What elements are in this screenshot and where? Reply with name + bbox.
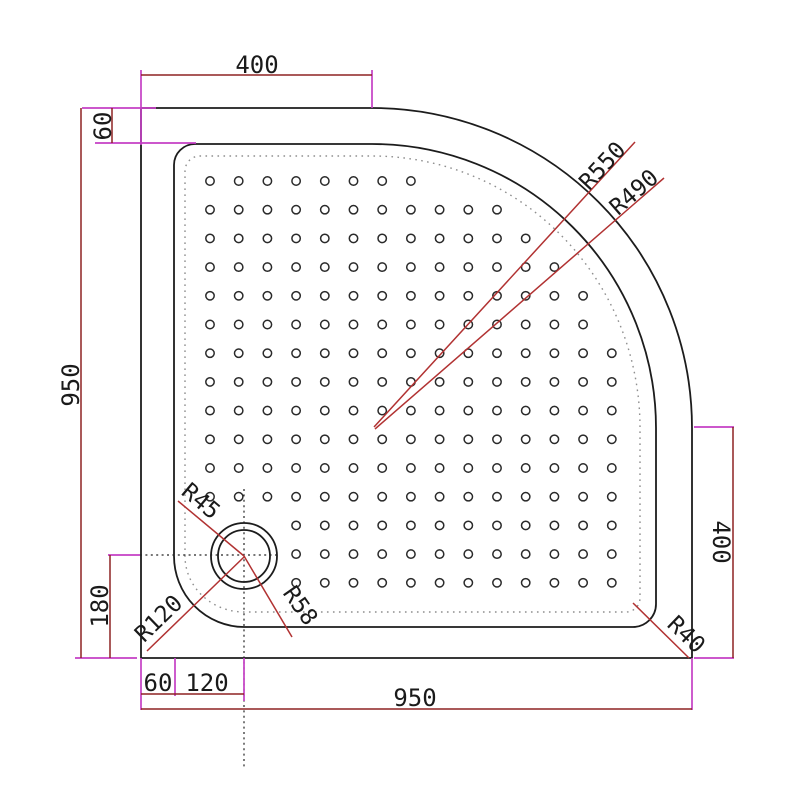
anti-slip-dot — [407, 263, 415, 271]
anti-slip-dot — [464, 464, 472, 472]
anti-slip-dot — [550, 521, 558, 529]
anti-slip-dot — [206, 320, 214, 328]
anti-slip-dot — [235, 493, 243, 501]
anti-slip-dot — [579, 579, 587, 587]
anti-slip-dot — [235, 292, 243, 300]
anti-slip-dot — [235, 234, 243, 242]
anti-slip-dot — [579, 521, 587, 529]
label-bottom-width: 950 — [393, 684, 436, 712]
anti-slip-dot — [378, 378, 386, 386]
anti-slip-dot — [321, 206, 329, 214]
anti-slip-dot — [378, 493, 386, 501]
anti-slip-dot — [464, 206, 472, 214]
anti-slip-dot — [435, 263, 443, 271]
anti-slip-dot — [407, 320, 415, 328]
anti-slip-dot — [206, 435, 214, 443]
anti-slip-dot — [608, 521, 616, 529]
anti-slip-dot — [206, 206, 214, 214]
anti-slip-dot — [349, 378, 357, 386]
anti-slip-dot — [349, 320, 357, 328]
anti-slip-dot — [464, 292, 472, 300]
anti-slip-dot — [263, 292, 271, 300]
shower-tray-technical-drawing: 400 60 950 400 180 60 120 950 R550 R490 … — [0, 0, 800, 800]
anti-slip-dot — [292, 435, 300, 443]
anti-slip-dot — [493, 550, 501, 558]
anti-slip-dot — [378, 464, 386, 472]
anti-slip-dot — [235, 378, 243, 386]
anti-slip-dot — [407, 406, 415, 414]
anti-slip-dot — [321, 320, 329, 328]
anti-slip-dot — [321, 550, 329, 558]
anti-slip-dot — [522, 493, 530, 501]
anti-slip-dot — [435, 320, 443, 328]
anti-slip-dot — [321, 177, 329, 185]
anti-slip-dot — [206, 234, 214, 242]
anti-slip-dot — [435, 435, 443, 443]
anti-slip-dot — [407, 550, 415, 558]
anti-slip-dot — [493, 406, 501, 414]
anti-slip-dot — [349, 263, 357, 271]
anti-slip-dot — [263, 493, 271, 501]
anti-slip-dot — [550, 435, 558, 443]
anti-slip-dot — [378, 406, 386, 414]
anti-slip-dot — [263, 320, 271, 328]
label-drain-from-bottom: 180 — [86, 584, 114, 627]
anti-slip-dot — [349, 234, 357, 242]
anti-slip-dot — [464, 435, 472, 443]
anti-slip-dot — [349, 579, 357, 587]
anti-slip-dot — [522, 320, 530, 328]
anti-slip-dot — [349, 206, 357, 214]
anti-slip-dot — [349, 177, 357, 185]
anti-slip-dot — [493, 521, 501, 529]
anti-slip-dot — [464, 234, 472, 242]
anti-slip-dot — [407, 349, 415, 357]
anti-slip-dot — [407, 234, 415, 242]
anti-slip-dot — [378, 320, 386, 328]
anti-slip-dot — [321, 464, 329, 472]
anti-slip-dot — [235, 320, 243, 328]
anti-slip-dot — [349, 406, 357, 414]
anti-slip-dot — [522, 579, 530, 587]
anti-slip-dot — [321, 378, 329, 386]
anti-slip-dot — [206, 292, 214, 300]
anti-slip-dot — [550, 406, 558, 414]
anti-slip-dot — [321, 406, 329, 414]
anti-slip-dot — [292, 406, 300, 414]
anti-slip-dot — [579, 464, 587, 472]
anti-slip-dot — [522, 550, 530, 558]
label-top-width: 400 — [235, 51, 278, 79]
anti-slip-dot — [522, 234, 530, 242]
anti-slip-dot — [579, 406, 587, 414]
anti-slip-dot — [206, 349, 214, 357]
anti-slip-dot — [321, 292, 329, 300]
anti-slip-dot — [292, 378, 300, 386]
anti-slip-dot — [464, 493, 472, 501]
anti-slip-dot — [550, 579, 558, 587]
anti-slip-dot — [407, 579, 415, 587]
anti-slip-dot — [579, 349, 587, 357]
anti-slip-dot — [378, 521, 386, 529]
anti-slip-dot — [292, 464, 300, 472]
anti-slip-dot — [206, 464, 214, 472]
anti-slip-dot — [550, 464, 558, 472]
anti-slip-dot — [435, 493, 443, 501]
label-drain-from-rim: 120 — [185, 669, 228, 697]
anti-slip-dot — [349, 464, 357, 472]
anti-slip-dot — [550, 493, 558, 501]
anti-slip-dot — [378, 349, 386, 357]
anti-slip-dot — [407, 493, 415, 501]
anti-slip-dot — [263, 406, 271, 414]
anti-slip-dot — [235, 206, 243, 214]
anti-slip-dot — [579, 550, 587, 558]
anti-slip-dot — [378, 263, 386, 271]
label-left-height: 950 — [57, 363, 85, 406]
anti-slip-dot — [464, 579, 472, 587]
anti-slip-dot — [550, 550, 558, 558]
anti-slip-dot — [493, 435, 501, 443]
anti-slip-dot — [464, 406, 472, 414]
anti-slip-dot — [493, 234, 501, 242]
anti-slip-dot — [407, 378, 415, 386]
anti-slip-dot — [378, 435, 386, 443]
anti-slip-dot — [493, 579, 501, 587]
anti-slip-dot — [206, 406, 214, 414]
anti-slip-dot — [235, 263, 243, 271]
anti-slip-dot — [321, 435, 329, 443]
anti-slip-dot — [263, 177, 271, 185]
anti-slip-dot — [235, 435, 243, 443]
anti-slip-dot — [579, 320, 587, 328]
anti-slip-dot — [378, 177, 386, 185]
anti-slip-dot — [464, 378, 472, 386]
anti-slip-dot — [292, 493, 300, 501]
anti-slip-dot — [292, 521, 300, 529]
anti-slip-dot — [292, 320, 300, 328]
anti-slip-dot — [321, 493, 329, 501]
anti-slip-dot — [378, 292, 386, 300]
anti-slip-dot — [550, 320, 558, 328]
anti-slip-dot — [435, 464, 443, 472]
anti-slip-dot — [493, 493, 501, 501]
label-rim-left: 60 — [144, 669, 173, 697]
anti-slip-dot — [292, 177, 300, 185]
anti-slip-dot — [579, 493, 587, 501]
anti-slip-dot — [378, 579, 386, 587]
anti-slip-dot — [263, 464, 271, 472]
anti-slip-dot — [608, 349, 616, 357]
anti-slip-dot — [608, 435, 616, 443]
anti-slip-dot — [435, 378, 443, 386]
anti-slip-dot — [321, 521, 329, 529]
anti-slip-dot — [349, 493, 357, 501]
anti-slip-dot — [608, 579, 616, 587]
anti-slip-dot — [493, 320, 501, 328]
anti-slip-dot — [321, 349, 329, 357]
anti-slip-dot — [378, 206, 386, 214]
anti-slip-dot — [579, 378, 587, 386]
anti-slip-dot — [378, 550, 386, 558]
anti-slip-dot — [464, 263, 472, 271]
anti-slip-dot — [206, 177, 214, 185]
anti-slip-dot — [349, 435, 357, 443]
anti-slip-dot — [321, 579, 329, 587]
anti-slip-dot — [493, 206, 501, 214]
anti-slip-dot — [522, 349, 530, 357]
anti-slip-dot — [522, 435, 530, 443]
anti-slip-dot — [550, 349, 558, 357]
anti-slip-dot — [263, 234, 271, 242]
anti-slip-dot — [235, 406, 243, 414]
anti-slip-dot — [263, 206, 271, 214]
anti-slip-dot — [407, 177, 415, 185]
anti-slip-dot — [435, 292, 443, 300]
anti-slip-dot — [407, 435, 415, 443]
anti-slip-dot — [608, 406, 616, 414]
anti-slip-dot — [349, 550, 357, 558]
anti-slip-dot — [292, 206, 300, 214]
anti-slip-dot — [579, 435, 587, 443]
label-right-height: 400 — [707, 520, 735, 563]
anti-slip-dot — [608, 378, 616, 386]
anti-slip-dot — [378, 234, 386, 242]
drawing-canvas: 400 60 950 400 180 60 120 950 R550 R490 … — [0, 0, 800, 800]
anti-slip-dot — [407, 292, 415, 300]
anti-slip-dot — [435, 550, 443, 558]
anti-slip-dot — [292, 234, 300, 242]
anti-slip-dot — [349, 349, 357, 357]
anti-slip-dot — [550, 378, 558, 386]
anti-slip-dot — [292, 263, 300, 271]
anti-slip-dot — [263, 263, 271, 271]
anti-slip-dot — [263, 349, 271, 357]
anti-slip-dot — [321, 263, 329, 271]
anti-slip-dot — [349, 292, 357, 300]
anti-slip-dot — [235, 177, 243, 185]
anti-slip-dot — [263, 378, 271, 386]
anti-slip-dot — [493, 349, 501, 357]
anti-slip-dot — [522, 464, 530, 472]
anti-slip-dot — [608, 493, 616, 501]
anti-slip-dot — [493, 378, 501, 386]
label-rim-top: 60 — [89, 112, 117, 141]
anti-slip-dot — [407, 521, 415, 529]
anti-slip-dot — [349, 521, 357, 529]
anti-slip-dot — [550, 292, 558, 300]
anti-slip-dot — [608, 550, 616, 558]
anti-slip-dot — [435, 406, 443, 414]
anti-slip-dot — [493, 464, 501, 472]
anti-slip-dot — [522, 378, 530, 386]
anti-slip-dot — [464, 550, 472, 558]
anti-slip-dot — [263, 435, 271, 443]
anti-slip-dot — [464, 521, 472, 529]
anti-slip-dot — [321, 234, 329, 242]
anti-slip-dot — [435, 521, 443, 529]
anti-slip-dot — [235, 349, 243, 357]
anti-slip-dot — [235, 464, 243, 472]
anti-slip-dot — [407, 464, 415, 472]
anti-slip-dot — [608, 464, 616, 472]
anti-slip-dot — [435, 579, 443, 587]
anti-slip-dot — [292, 349, 300, 357]
anti-slip-dot — [435, 206, 443, 214]
anti-slip-dot — [579, 292, 587, 300]
anti-slip-dot — [292, 292, 300, 300]
anti-slip-dot — [407, 206, 415, 214]
anti-slip-dot — [522, 406, 530, 414]
anti-slip-dot — [435, 234, 443, 242]
anti-slip-dot — [522, 521, 530, 529]
anti-slip-dot — [292, 550, 300, 558]
anti-slip-dot — [206, 378, 214, 386]
anti-slip-dot — [493, 263, 501, 271]
anti-slip-dot — [206, 263, 214, 271]
